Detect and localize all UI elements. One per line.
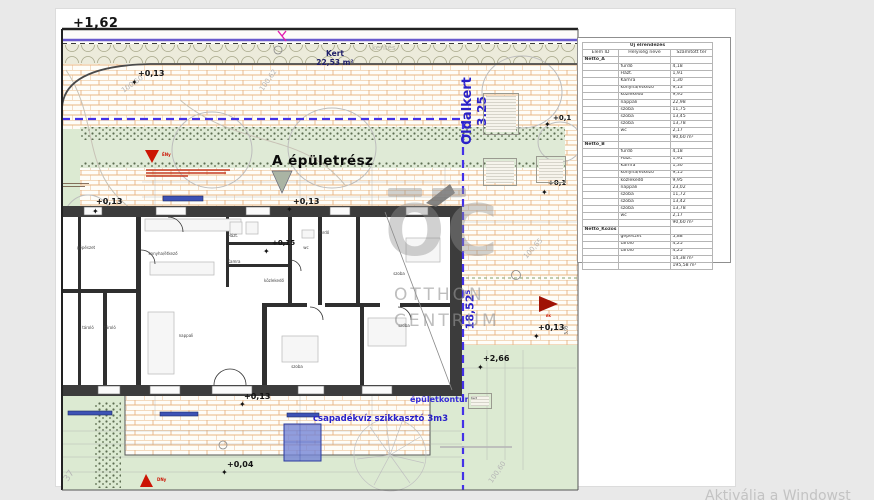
room-label: szoba xyxy=(377,272,421,276)
table-row: közlekedő9,95 xyxy=(583,92,713,99)
table-row: 90,60 m² xyxy=(583,135,713,142)
fence-label: kerítés xyxy=(372,44,396,52)
table-row: Új elrendezés xyxy=(583,43,713,50)
table-row: Nettó_B xyxy=(583,142,713,149)
table-row: Nettó_Közös xyxy=(583,227,713,234)
level-label: +0,13 xyxy=(244,393,270,401)
note-box xyxy=(483,93,519,135)
watermark-line2: CENTRUM xyxy=(394,311,500,331)
red-annotation-text xyxy=(146,169,232,179)
table-row: Kamra1,30 xyxy=(583,78,713,85)
table-row: közlekedő9,95 xyxy=(583,177,713,184)
room-label: konyha/étkező xyxy=(141,252,185,256)
screenshot-page: +1,62 Kert 22,53 m² kerítés A épületrész… xyxy=(0,0,874,500)
room-label: fürdő xyxy=(302,231,346,235)
level-marker-icon: ✦ xyxy=(221,469,228,477)
drawing-footnote-text xyxy=(440,446,512,448)
table-row: 195,58 m² xyxy=(583,262,713,269)
table-row: Házt.1,91 xyxy=(583,71,713,78)
table-row: szoba11,75 xyxy=(583,106,713,113)
room-label: Házt. xyxy=(211,234,255,238)
table-row: konyha/étkező9,15 xyxy=(583,170,713,177)
level-label: +0,13 xyxy=(538,324,564,332)
level-marker-icon: ✦ xyxy=(544,121,551,129)
table-row: Kamra1,30 xyxy=(583,163,713,170)
kert-note-box: Kert xyxy=(468,393,492,409)
area-table: Új elrendezésElem IDHelyiség neveSzámíto… xyxy=(582,42,713,270)
level-marker-icon: ✦ xyxy=(541,189,548,197)
table-row: 90,60 m² xyxy=(583,220,713,227)
table-row: nappali22,98 xyxy=(583,99,713,106)
table-row: tároló4,25 xyxy=(583,248,713,255)
compass-nw-label: ÉNy xyxy=(162,152,171,157)
building-contour-label: épületkontúr xyxy=(410,395,469,404)
tap-annotation-text xyxy=(63,183,91,188)
level-marker-icon: ✦ xyxy=(239,401,246,409)
level-marker-icon: ✦ xyxy=(533,333,540,341)
room-label: közlekedő xyxy=(252,279,296,283)
watermark-line1: OTTHON xyxy=(394,285,485,305)
level-label: +2,66 xyxy=(483,355,509,363)
table-row: gépészet5,88 xyxy=(583,234,713,241)
table-row: szoba13,45 xyxy=(583,113,713,120)
level-marker-icon: ✦ xyxy=(477,364,484,372)
watermark-logo-bar xyxy=(388,188,422,197)
level-label: +0,1 xyxy=(553,115,571,122)
level-label-main: +1,62 xyxy=(73,17,118,30)
kert-area-label: Kert 22,53 m² xyxy=(303,50,367,67)
table-row: szoba13,78 xyxy=(583,121,713,128)
table-row: konyha/étkező9,13 xyxy=(583,85,713,92)
level-label: +0,13 xyxy=(293,198,319,206)
table-row: fürdő4,18 xyxy=(583,149,713,156)
room-label: tároló xyxy=(88,326,132,330)
note-box xyxy=(483,158,517,186)
level-marker-icon: ✦ xyxy=(286,206,293,214)
table-row: szoba13,42 xyxy=(583,199,713,206)
table-row: wc2,17 xyxy=(583,128,713,135)
compass-e-label: ÉK xyxy=(546,314,551,318)
table-row: nappali23,02 xyxy=(583,184,713,191)
level-marker-icon: ✦ xyxy=(92,208,99,216)
table-row: Elem IDHelyiség neveSzámított ter xyxy=(583,50,713,57)
soakaway-label: csapadékvíz szikkasztó 3m3 xyxy=(313,414,448,424)
building-section-label: A épületrész xyxy=(272,153,374,169)
level-marker-icon: ✦ xyxy=(263,248,270,256)
table-row: wc2,17 xyxy=(583,213,713,220)
room-label: szoba xyxy=(275,365,319,369)
table-row: szoba11,72 xyxy=(583,191,713,198)
table-row: fürdő4,18 xyxy=(583,64,713,71)
compass-sw-label: DNy xyxy=(157,477,166,482)
room-label: Kamra xyxy=(212,260,256,264)
room-label: nappali xyxy=(164,334,208,338)
watermark-logo: OC xyxy=(385,196,500,266)
oldalkert-name: Oldalkert xyxy=(460,56,475,166)
table-row: Nettó_A xyxy=(583,57,713,64)
room-label: wc xyxy=(284,246,328,250)
room-label: gépészet xyxy=(64,246,108,250)
table-row: 14,38 m² xyxy=(583,255,713,262)
level-label: +0,13 xyxy=(96,198,122,206)
note-box xyxy=(536,156,566,183)
windows-activation-watermark: Aktiválja a Windowst xyxy=(705,488,851,500)
table-row: tároló4,25 xyxy=(583,241,713,248)
side-dimension-label: 18,52⁵ xyxy=(464,270,477,350)
kert-area: 22,53 m² xyxy=(303,59,367,68)
table-row: szoba13,78 xyxy=(583,206,713,213)
watermark-logo-bar xyxy=(432,188,466,197)
table-row: Házt.1,91 xyxy=(583,156,713,163)
level-label: +0,04 xyxy=(227,461,253,469)
